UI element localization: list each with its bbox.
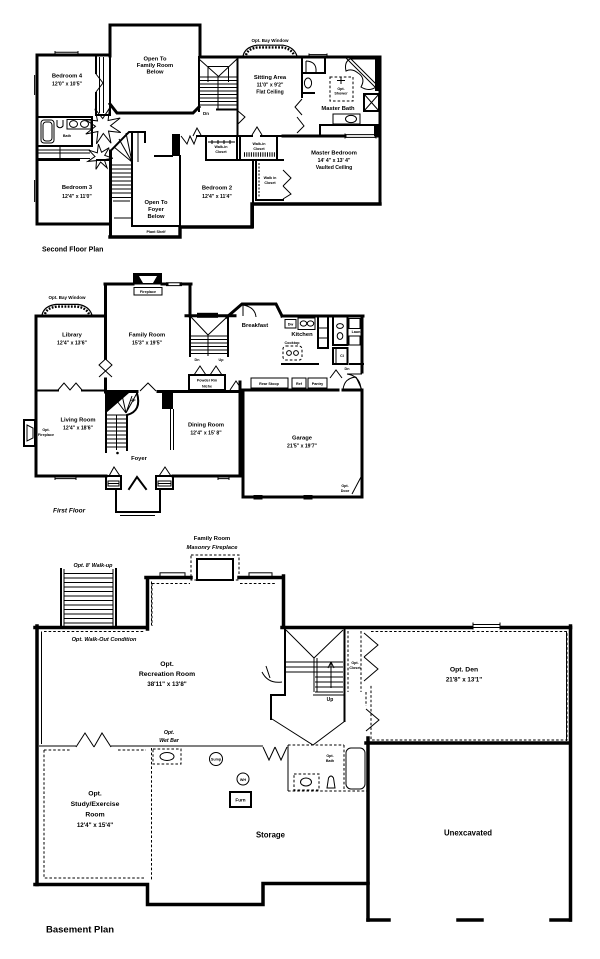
svg-text:Foyer: Foyer bbox=[148, 207, 165, 213]
svg-text:Study/Exercise: Study/Exercise bbox=[71, 801, 120, 808]
svg-text:12'4" x 18'6": 12'4" x 18'6" bbox=[63, 426, 93, 432]
svg-text:Bedroom 4: Bedroom 4 bbox=[52, 74, 83, 80]
svg-text:Walk-in: Walk-in bbox=[253, 142, 267, 146]
svg-text:Storage: Storage bbox=[256, 831, 286, 840]
svg-text:Closet: Closet bbox=[264, 181, 276, 185]
svg-text:Pantry: Pantry bbox=[312, 382, 324, 386]
svg-text:Cl: Cl bbox=[340, 354, 344, 358]
svg-text:Closet: Closet bbox=[215, 150, 227, 154]
svg-text:Opt.: Opt. bbox=[341, 484, 348, 488]
svg-text:Furn: Furn bbox=[235, 798, 245, 803]
svg-text:Library: Library bbox=[62, 333, 82, 339]
svg-text:Master Bedroom: Master Bedroom bbox=[311, 151, 357, 157]
svg-text:Opt.: Opt. bbox=[160, 661, 174, 668]
svg-text:Family Room: Family Room bbox=[129, 333, 165, 339]
svg-text:Walk in: Walk in bbox=[264, 176, 278, 180]
svg-text:Below: Below bbox=[147, 214, 165, 220]
svg-text:Up: Up bbox=[219, 358, 225, 362]
svg-text:Powder Rm: Powder Rm bbox=[197, 379, 218, 383]
svg-text:Closet: Closet bbox=[253, 147, 265, 151]
svg-text:Opt. Walk-Out Condition: Opt. Walk-Out Condition bbox=[72, 637, 137, 643]
svg-text:Shower: Shower bbox=[334, 92, 348, 96]
svg-text:Plant Shelf: Plant Shelf bbox=[146, 230, 166, 234]
svg-text:Opt.: Opt. bbox=[326, 754, 333, 758]
svg-text:Second Floor Plan: Second Floor Plan bbox=[42, 247, 103, 254]
svg-text:Walk-in: Walk-in bbox=[215, 145, 229, 149]
svg-text:Dw: Dw bbox=[288, 323, 294, 327]
svg-text:WH: WH bbox=[240, 778, 246, 782]
svg-text:Opt.: Opt. bbox=[88, 791, 102, 798]
svg-text:21'5" x 19'7": 21'5" x 19'7" bbox=[287, 444, 317, 450]
svg-text:Recreation Room: Recreation Room bbox=[139, 671, 195, 678]
svg-text:Sump: Sump bbox=[211, 758, 222, 762]
svg-text:Open To: Open To bbox=[143, 57, 167, 63]
svg-text:Master Bath: Master Bath bbox=[321, 106, 355, 112]
svg-text:Open To: Open To bbox=[144, 200, 168, 206]
svg-text:Opt. Bay Window: Opt. Bay Window bbox=[252, 38, 289, 43]
svg-text:Up: Up bbox=[327, 697, 334, 703]
svg-text:Opt.: Opt. bbox=[351, 661, 358, 665]
svg-text:Opt.: Opt. bbox=[164, 730, 174, 736]
svg-text:Ref: Ref bbox=[296, 382, 303, 386]
svg-text:Kitchen: Kitchen bbox=[291, 332, 313, 338]
svg-text:12'4" x 11'4": 12'4" x 11'4" bbox=[202, 194, 232, 200]
svg-text:Opt. Bay Window: Opt. Bay Window bbox=[49, 295, 86, 300]
svg-text:Dn: Dn bbox=[203, 111, 209, 116]
svg-text:Fireplace: Fireplace bbox=[140, 290, 156, 294]
svg-text:15'3" x 19'5": 15'3" x 19'5" bbox=[132, 341, 162, 347]
svg-text:Opt. 8' Walk-up: Opt. 8' Walk-up bbox=[74, 563, 114, 569]
svg-text:14' 4" x 13' 4": 14' 4" x 13' 4" bbox=[318, 158, 351, 164]
svg-text:Breakfast: Breakfast bbox=[242, 323, 268, 329]
svg-text:Living Room: Living Room bbox=[60, 418, 95, 424]
svg-text:Foyer: Foyer bbox=[131, 456, 148, 462]
svg-text:12'4" x 13'6": 12'4" x 13'6" bbox=[57, 341, 87, 347]
svg-text:Bath: Bath bbox=[326, 759, 335, 763]
svg-text:Dn: Dn bbox=[345, 367, 351, 371]
svg-text:Niche: Niche bbox=[202, 385, 212, 389]
svg-text:Closet: Closet bbox=[349, 666, 361, 670]
svg-text:Cooktop: Cooktop bbox=[285, 341, 301, 345]
svg-text:11'0" x 9'2": 11'0" x 9'2" bbox=[257, 83, 284, 89]
svg-text:Opt.: Opt. bbox=[42, 428, 49, 432]
svg-text:12'4" x 15'4": 12'4" x 15'4" bbox=[77, 822, 113, 829]
svg-text:Vaulted Ceiling: Vaulted Ceiling bbox=[316, 165, 353, 171]
svg-text:Opt. Den: Opt. Den bbox=[450, 667, 478, 674]
svg-text:Fireplace: Fireplace bbox=[38, 433, 54, 437]
svg-text:12'0" x 10'5": 12'0" x 10'5" bbox=[52, 82, 82, 88]
svg-text:Dn: Dn bbox=[195, 358, 201, 362]
svg-text:Sitting Area: Sitting Area bbox=[254, 75, 287, 81]
svg-text:Masonry Fireplace: Masonry Fireplace bbox=[187, 545, 239, 551]
svg-text:38'11" x 13'8": 38'11" x 13'8" bbox=[147, 681, 187, 688]
svg-text:Garage: Garage bbox=[292, 436, 313, 442]
svg-text:21'8" x 13'1": 21'8" x 13'1" bbox=[446, 677, 482, 684]
svg-text:Flat Ceiling: Flat Ceiling bbox=[256, 90, 283, 96]
svg-text:Family Room: Family Room bbox=[194, 536, 230, 542]
svg-text:Rear Stoop: Rear Stoop bbox=[259, 382, 279, 386]
svg-text:Family Room: Family Room bbox=[137, 63, 173, 69]
svg-text:Laun: Laun bbox=[352, 330, 362, 334]
svg-text:Unexcavated: Unexcavated bbox=[444, 829, 492, 838]
svg-text:Up: Up bbox=[131, 398, 137, 402]
svg-text:Bedroom 2: Bedroom 2 bbox=[202, 186, 232, 192]
svg-text:Dining Room: Dining Room bbox=[188, 423, 224, 429]
svg-text:Bedroom 3: Bedroom 3 bbox=[62, 185, 93, 191]
svg-text:12'4" x 15' 8": 12'4" x 15' 8" bbox=[190, 431, 222, 437]
svg-text:Room: Room bbox=[85, 812, 104, 819]
svg-text:12'4" x 11'0": 12'4" x 11'0" bbox=[62, 194, 92, 200]
svg-text:Opt.: Opt. bbox=[337, 87, 344, 91]
svg-text:Door: Door bbox=[341, 489, 350, 493]
svg-text:Basement Plan: Basement Plan bbox=[46, 925, 114, 936]
svg-text:Bath: Bath bbox=[63, 134, 72, 138]
svg-text:Wet Bar: Wet Bar bbox=[159, 738, 179, 744]
svg-text:First Floor: First Floor bbox=[53, 508, 86, 515]
svg-text:Below: Below bbox=[146, 70, 164, 76]
